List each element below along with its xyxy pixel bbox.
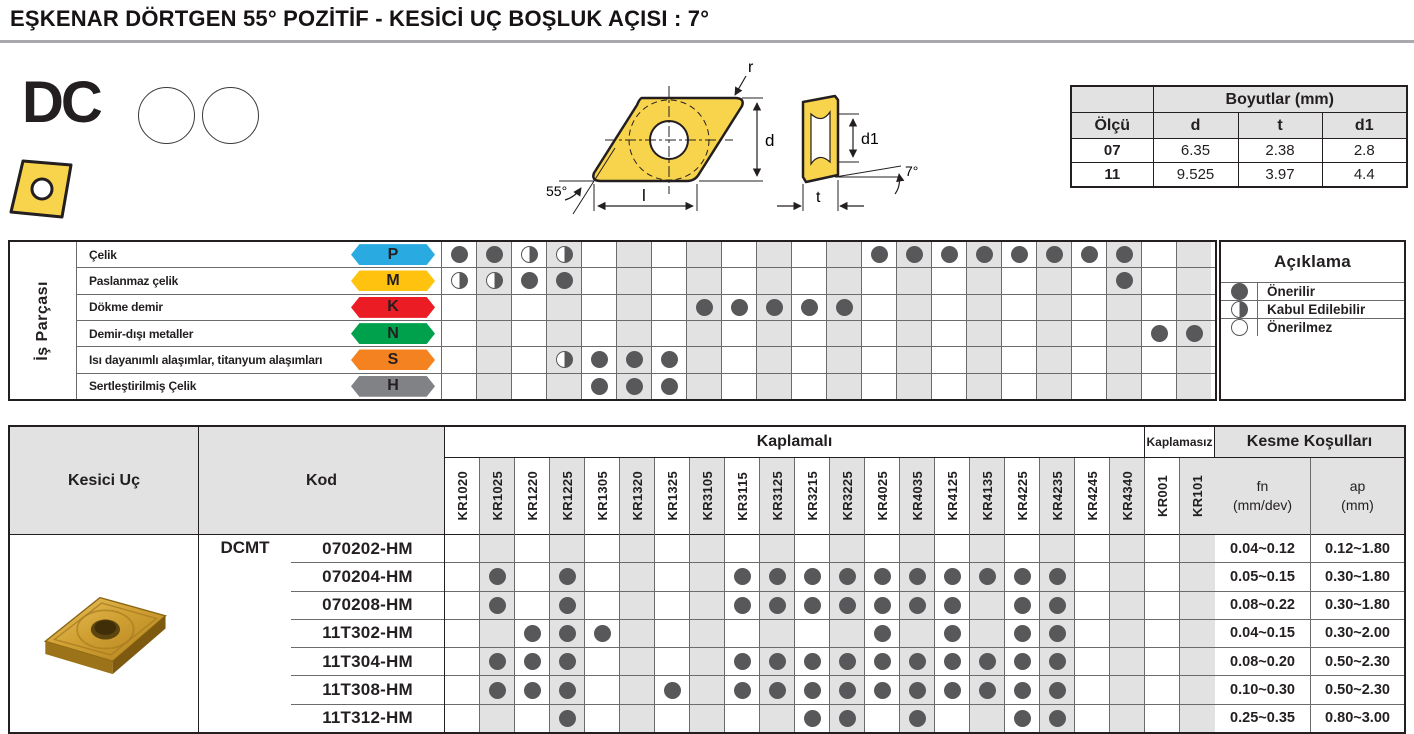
matrix-cell (1071, 321, 1106, 346)
dim-col-size: Ölçü (1071, 113, 1153, 139)
grade-dot-cell (585, 591, 619, 619)
grade-dot-cell (970, 562, 1004, 590)
matrix-cell (1071, 295, 1106, 320)
grade-dot-cell (445, 675, 479, 703)
matrix-cell (476, 242, 511, 267)
grade-column: KR1320 (620, 458, 655, 732)
dim-label-l: l (642, 186, 646, 205)
insert-code: 11T308-HM (291, 675, 444, 703)
grade-dot-cell (1110, 675, 1144, 703)
matrix-cell (1141, 268, 1176, 293)
material-row: Paslanmaz çelikM (77, 267, 1215, 293)
legend-item-label: Önerilir (1258, 283, 1404, 300)
grade-dot-cell (585, 535, 619, 562)
grade-header: KR001 (1145, 458, 1179, 535)
grade-dot-cell (935, 647, 969, 675)
legend: Açıklama ÖnerilirKabul EdilebilirÖnerilm… (1219, 240, 1406, 401)
grade-code-label: KR4025 (875, 471, 890, 521)
legend-icon-cell (1221, 301, 1258, 318)
dim-col-d1: d1 (1322, 113, 1407, 139)
grade-dot-cell (725, 591, 759, 619)
matrix-cell (1036, 321, 1071, 346)
matrix-cell (476, 295, 511, 320)
matrix-cell (1071, 242, 1106, 267)
matrix-cell (1001, 347, 1036, 372)
ap-label: ap (1350, 477, 1366, 496)
material-matrix: İş Parçası ÇelikPPaslanmaz çelikMDökme d… (8, 240, 1217, 401)
fn-value: 0.04~0.15 (1215, 619, 1310, 647)
acceptable-halfdot-icon (1231, 301, 1248, 318)
recommended-dot-icon (874, 597, 891, 614)
matrix-cell (791, 347, 826, 372)
recommended-dot-icon (804, 568, 821, 585)
insert-photo (27, 583, 182, 685)
grade-dot-cell (760, 591, 794, 619)
grade-dot-cell (655, 647, 689, 675)
grade-dot-cell (935, 619, 969, 647)
grade-dot-cell (795, 562, 829, 590)
matrix-cell (756, 374, 791, 399)
recommended-dot-icon (871, 246, 888, 263)
cutting-conditions-section: Kesme Koşulları fn (mm/dev) 0.04~0.120.0… (1215, 427, 1404, 732)
fn-value: 0.08~0.20 (1215, 647, 1310, 675)
grade-dot-cell (1005, 562, 1039, 590)
recommended-dot-icon (524, 653, 541, 670)
matrix-cell (791, 242, 826, 267)
recommended-dot-icon (1186, 325, 1203, 342)
matrix-cell (1071, 347, 1106, 372)
grade-dot-cell (970, 619, 1004, 647)
legend-icon-cell (1221, 319, 1258, 336)
grade-dot-cell (585, 675, 619, 703)
matrix-cell (826, 268, 861, 293)
recommended-dot-icon (591, 378, 608, 395)
matrix-cell (581, 321, 616, 346)
matrix-cell (546, 374, 581, 399)
grade-dot-cell (1075, 591, 1109, 619)
grade-code-label: KR4125 (945, 471, 960, 521)
matrix-cell (651, 242, 686, 267)
grade-header: KR4235 (1040, 458, 1074, 535)
grade-header: KR1305 (585, 458, 619, 535)
grade-dot-cell (655, 562, 689, 590)
matrix-cell (511, 347, 546, 372)
grade-header: KR3115 (725, 458, 759, 535)
material-label-zone: ÇelikP (77, 242, 441, 267)
grade-dot-cell (760, 704, 794, 732)
recommended-dot-icon (1049, 653, 1066, 670)
recommended-dot-icon (696, 299, 713, 316)
recommended-dot-icon (836, 299, 853, 316)
matrix-cell (1141, 374, 1176, 399)
matrix-cell (476, 268, 511, 293)
grade-dot-cell (970, 647, 1004, 675)
grade-code-label: KR3125 (770, 471, 785, 521)
shape-circle-icon (138, 87, 195, 144)
recommended-dot-icon (944, 597, 961, 614)
grade-dot-cell (550, 704, 584, 732)
matrix-cell (931, 374, 966, 399)
grade-dot-cell (865, 562, 899, 590)
recommended-dot-icon (1049, 597, 1066, 614)
grade-header: KR3215 (795, 458, 829, 535)
grade-dot-cell (760, 647, 794, 675)
insert-top-view: r d l 55° (546, 59, 774, 214)
catalog-page: EŞKENAR DÖRTGEN 55° POZİTİF - KESİCİ UÇ … (0, 0, 1414, 734)
legend-item: Önerilir (1221, 283, 1404, 300)
material-label: Sertleştirilmiş Çelik (77, 379, 351, 393)
matrix-cell (896, 347, 931, 372)
grade-header: KR1020 (445, 458, 479, 535)
grade-dot-cell (655, 591, 689, 619)
matrix-cell (826, 295, 861, 320)
grade-dot-cell (900, 535, 934, 562)
matrix-cell (651, 295, 686, 320)
grade-dot-cell (1040, 562, 1074, 590)
grade-dot-cell (970, 675, 1004, 703)
recommended-dot-icon (1046, 246, 1063, 263)
grade-dot-cell (1005, 704, 1039, 732)
grade-header: KR101 (1180, 458, 1215, 535)
recommended-dot-icon (1116, 246, 1133, 263)
matrix-cell (686, 295, 721, 320)
matrix-cell (1001, 242, 1036, 267)
matrix-cell (861, 374, 896, 399)
grade-header: KR1225 (550, 458, 584, 535)
matrix-cell (1141, 347, 1176, 372)
dim-value: 3.97 (1238, 163, 1322, 188)
material-row: Demir-dışı metallerN (77, 320, 1215, 346)
grade-dot-cell (1145, 675, 1179, 703)
code-list: 070202-HM070204-HM070208-HM11T302-HM11T3… (291, 535, 444, 732)
matrix-cell (441, 321, 476, 346)
recommended-dot-icon (909, 682, 926, 699)
matrix-cell (1001, 321, 1036, 346)
grade-dot-cell (795, 675, 829, 703)
dim-col-d: d (1153, 113, 1238, 139)
grade-dot-cell (655, 704, 689, 732)
matrix-cell (896, 321, 931, 346)
fn-column: fn (mm/dev) 0.04~0.120.05~0.150.08~0.220… (1215, 458, 1311, 732)
grade-header: KR3225 (830, 458, 864, 535)
recommended-dot-icon (734, 682, 751, 699)
grade-dot-cell (445, 535, 479, 562)
grade-dot-cell (515, 535, 549, 562)
grade-column: KR1025 (480, 458, 515, 732)
grade-dot-cell (1005, 647, 1039, 675)
grade-dot-cell (550, 619, 584, 647)
grade-column: KR001 (1145, 458, 1180, 732)
fn-value: 0.04~0.12 (1215, 535, 1310, 562)
material-label: Dökme demir (77, 300, 351, 314)
material-row: Dökme demirK (77, 294, 1215, 320)
grade-dot-cell (970, 535, 1004, 562)
grade-code-label: KR1020 (455, 471, 470, 521)
matrix-cell (1141, 295, 1176, 320)
dim-label-7deg: 7° (905, 163, 918, 179)
matrix-cell (686, 268, 721, 293)
ap-unit: (mm) (1341, 496, 1374, 515)
recommended-dot-icon (521, 272, 538, 289)
recommended-dot-icon (874, 653, 891, 670)
grade-dot-cell (725, 619, 759, 647)
matrix-cell (861, 295, 896, 320)
recommended-dot-icon (804, 597, 821, 614)
matrix-cell (861, 321, 896, 346)
grade-column: KR4225 (1005, 458, 1040, 732)
material-label-zone: Paslanmaz çelikM (77, 268, 441, 293)
grade-dot-cell (830, 562, 864, 590)
matrix-cell (616, 374, 651, 399)
matrix-cell (511, 374, 546, 399)
matrix-cell (476, 347, 511, 372)
dim-value: 2.38 (1238, 139, 1322, 163)
recommended-dot-icon (801, 299, 818, 316)
grade-dot-cell (445, 591, 479, 619)
grade-header: KR1025 (480, 458, 514, 535)
grade-code-label: KR3215 (805, 471, 820, 521)
matrix-cell (616, 321, 651, 346)
matrix-cell (791, 321, 826, 346)
matrix-cell (791, 374, 826, 399)
grade-code-label: KR1025 (490, 471, 505, 521)
grade-column: KR4235 (1040, 458, 1075, 732)
matrix-cell (1106, 268, 1141, 293)
grade-dot-cell (935, 562, 969, 590)
matrix-cell (1036, 242, 1071, 267)
matrix-cell (721, 242, 756, 267)
grade-dot-cell (690, 591, 724, 619)
grade-dot-cell (620, 535, 654, 562)
recommended-dot-icon (1014, 653, 1031, 670)
grade-dot-cell (515, 647, 549, 675)
matrix-cell (1176, 374, 1211, 399)
grade-dot-cell (1110, 591, 1144, 619)
matrix-cell (511, 268, 546, 293)
grade-dot-cell (900, 562, 934, 590)
recommended-dot-icon (734, 597, 751, 614)
matrix-cell (861, 347, 896, 372)
matrix-cell (546, 347, 581, 372)
matrix-cell (756, 295, 791, 320)
grade-dot-cell (550, 647, 584, 675)
matrix-cell (581, 268, 616, 293)
grade-code-label: KR1225 (560, 471, 575, 521)
matrix-cell (1176, 295, 1211, 320)
ap-value: 0.30~2.00 (1311, 619, 1404, 647)
matrix-cell (1106, 321, 1141, 346)
grade-dot-cell (1180, 535, 1215, 562)
grade-dot-cell (480, 535, 514, 562)
grade-dot-cell (725, 562, 759, 590)
dim-value: 6.35 (1153, 139, 1238, 163)
matrix-cell (581, 347, 616, 372)
grade-dot-cell (760, 562, 794, 590)
material-row: Isı dayanımlı alaşımlar, titanyum alaşım… (77, 346, 1215, 372)
matrix-cell (756, 268, 791, 293)
matrix-cell (826, 347, 861, 372)
grade-dot-cell (900, 619, 934, 647)
grade-dot-cell (620, 647, 654, 675)
dim-value: 2.8 (1322, 139, 1407, 163)
grade-dot-cell (795, 535, 829, 562)
code-body: DCMT 070202-HM070204-HM070208-HM11T302-H… (199, 535, 444, 732)
insert-shape-code: DC (22, 74, 100, 132)
grade-header: KR1220 (515, 458, 549, 535)
grade-columns: KR1020KR1025KR1220KR1225KR1305KR1320KR13… (445, 458, 1214, 732)
matrix-cell (1141, 242, 1176, 267)
legend-item: Önerilmez (1221, 318, 1404, 336)
recommended-dot-icon (489, 682, 506, 699)
recommended-dot-icon (661, 351, 678, 368)
fn-label: fn (1257, 477, 1269, 496)
matrix-cell (966, 321, 1001, 346)
workpiece-axis-text: İş Parçası (34, 281, 52, 361)
grade-dot-cell (585, 619, 619, 647)
grade-dot-cell (760, 535, 794, 562)
recommended-dot-icon (524, 682, 541, 699)
grade-code-label: KR4225 (1015, 471, 1030, 521)
dim-table-title: Boyutlar (mm) (1153, 86, 1407, 113)
dim-value: 9.525 (1153, 163, 1238, 188)
grade-dot-cell (900, 591, 934, 619)
grade-dot-cell (830, 704, 864, 732)
matrix-cell (966, 242, 1001, 267)
matrix-cell (1176, 268, 1211, 293)
grade-dot-cell (1040, 704, 1074, 732)
matrix-cell (931, 242, 966, 267)
grade-dot-cell (445, 562, 479, 590)
recommended-dot-icon (661, 378, 678, 395)
matrix-cell (966, 295, 1001, 320)
recommended-dot-icon (1014, 710, 1031, 727)
dim-label-55deg: 55° (546, 183, 567, 199)
matrix-cell (511, 242, 546, 267)
grade-dot-cell (1110, 647, 1144, 675)
grade-dot-cell (865, 675, 899, 703)
grades-title-row: Kaplamalı Kaplamasız (445, 427, 1214, 458)
grade-dot-cell (1180, 619, 1215, 647)
matrix-cell (826, 374, 861, 399)
grade-dot-cell (725, 704, 759, 732)
grade-code-label: KR1220 (525, 471, 540, 521)
grade-dot-cell (1180, 591, 1215, 619)
recommended-dot-icon (769, 568, 786, 585)
recommended-dot-icon (1231, 283, 1248, 300)
recommended-dot-icon (559, 597, 576, 614)
header-kod: Kod (199, 427, 444, 535)
matrix-cell (1036, 295, 1071, 320)
grade-column: KR1325 (655, 458, 690, 732)
recommended-dot-icon (1116, 272, 1133, 289)
recommended-dot-icon (839, 710, 856, 727)
grade-dot-cell (480, 591, 514, 619)
matrix-cell (966, 347, 1001, 372)
insert-outline-icon (6, 158, 80, 224)
grade-dot-cell (655, 535, 689, 562)
matrix-cell (826, 321, 861, 346)
fn-value: 0.05~0.15 (1215, 562, 1310, 590)
recommended-dot-icon (489, 597, 506, 614)
recommended-dot-icon (909, 710, 926, 727)
grade-dot-cell (690, 647, 724, 675)
grade-dot-cell (480, 675, 514, 703)
legend-item-label: Önerilmez (1258, 319, 1404, 336)
dim-label-t: t (816, 189, 821, 206)
matrix-cell (651, 374, 686, 399)
grade-dot-cell (1110, 562, 1144, 590)
ap-value: 0.50~2.30 (1311, 675, 1404, 703)
dim-label-d1: d1 (861, 131, 879, 148)
ap-header: ap (mm) (1311, 458, 1404, 535)
recommended-dot-icon (486, 246, 503, 263)
recommended-dot-icon (559, 710, 576, 727)
grade-dot-cell (515, 675, 549, 703)
matrix-cell (651, 347, 686, 372)
matrix-cell (476, 374, 511, 399)
recommended-dot-icon (626, 378, 643, 395)
grade-dot-cell (725, 647, 759, 675)
recommended-dot-icon (524, 625, 541, 642)
recommended-dot-icon (626, 351, 643, 368)
shape-circle-icon (202, 87, 259, 144)
grade-dot-cell (1180, 675, 1215, 703)
matrix-cell (1036, 347, 1071, 372)
dim-blank-cell (1071, 86, 1153, 113)
grade-dot-cell (935, 591, 969, 619)
matrix-cell (791, 268, 826, 293)
grade-dot-cell (620, 591, 654, 619)
grade-dot-cell (445, 647, 479, 675)
grade-dot-cell (865, 535, 899, 562)
recommended-dot-icon (489, 653, 506, 670)
material-row: Sertleştirilmiş ÇelikH (77, 373, 1215, 399)
grade-dot-cell (1075, 704, 1109, 732)
matrix-cell (861, 242, 896, 267)
matrix-cell (441, 295, 476, 320)
grade-dot-cell (760, 675, 794, 703)
recommended-dot-icon (979, 682, 996, 699)
grade-dot-cell (795, 647, 829, 675)
matrix-cell (1036, 374, 1071, 399)
matrix-cell (721, 268, 756, 293)
matrix-cell (546, 268, 581, 293)
recommended-dot-icon (731, 299, 748, 316)
grade-code-label: KR4135 (980, 471, 995, 521)
dim-label-r: r (748, 59, 754, 76)
dim-col-t: t (1238, 113, 1322, 139)
grade-code-label: KR101 (1190, 475, 1205, 517)
fn-unit: (mm/dev) (1233, 496, 1292, 515)
recommended-dot-icon (1049, 625, 1066, 642)
recommended-dot-icon (944, 568, 961, 585)
material-label: Paslanmaz çelik (77, 274, 351, 288)
recommended-dot-icon (1049, 710, 1066, 727)
grade-header: KR3105 (690, 458, 724, 535)
grade-dot-cell (1145, 647, 1179, 675)
grade-dot-cell (480, 562, 514, 590)
acceptable-halfdot-icon (521, 246, 538, 263)
fn-value: 0.25~0.35 (1215, 704, 1310, 732)
grade-dot-cell (795, 704, 829, 732)
insert-code: 11T312-HM (291, 704, 444, 732)
grade-dot-cell (585, 647, 619, 675)
matrix-cell (791, 295, 826, 320)
recommended-dot-icon (664, 682, 681, 699)
material-label-zone: Dökme demirK (77, 295, 441, 320)
grade-code-label: KR1325 (665, 471, 680, 521)
grades-section: Kaplamalı Kaplamasız KR1020KR1025KR1220K… (445, 427, 1215, 732)
